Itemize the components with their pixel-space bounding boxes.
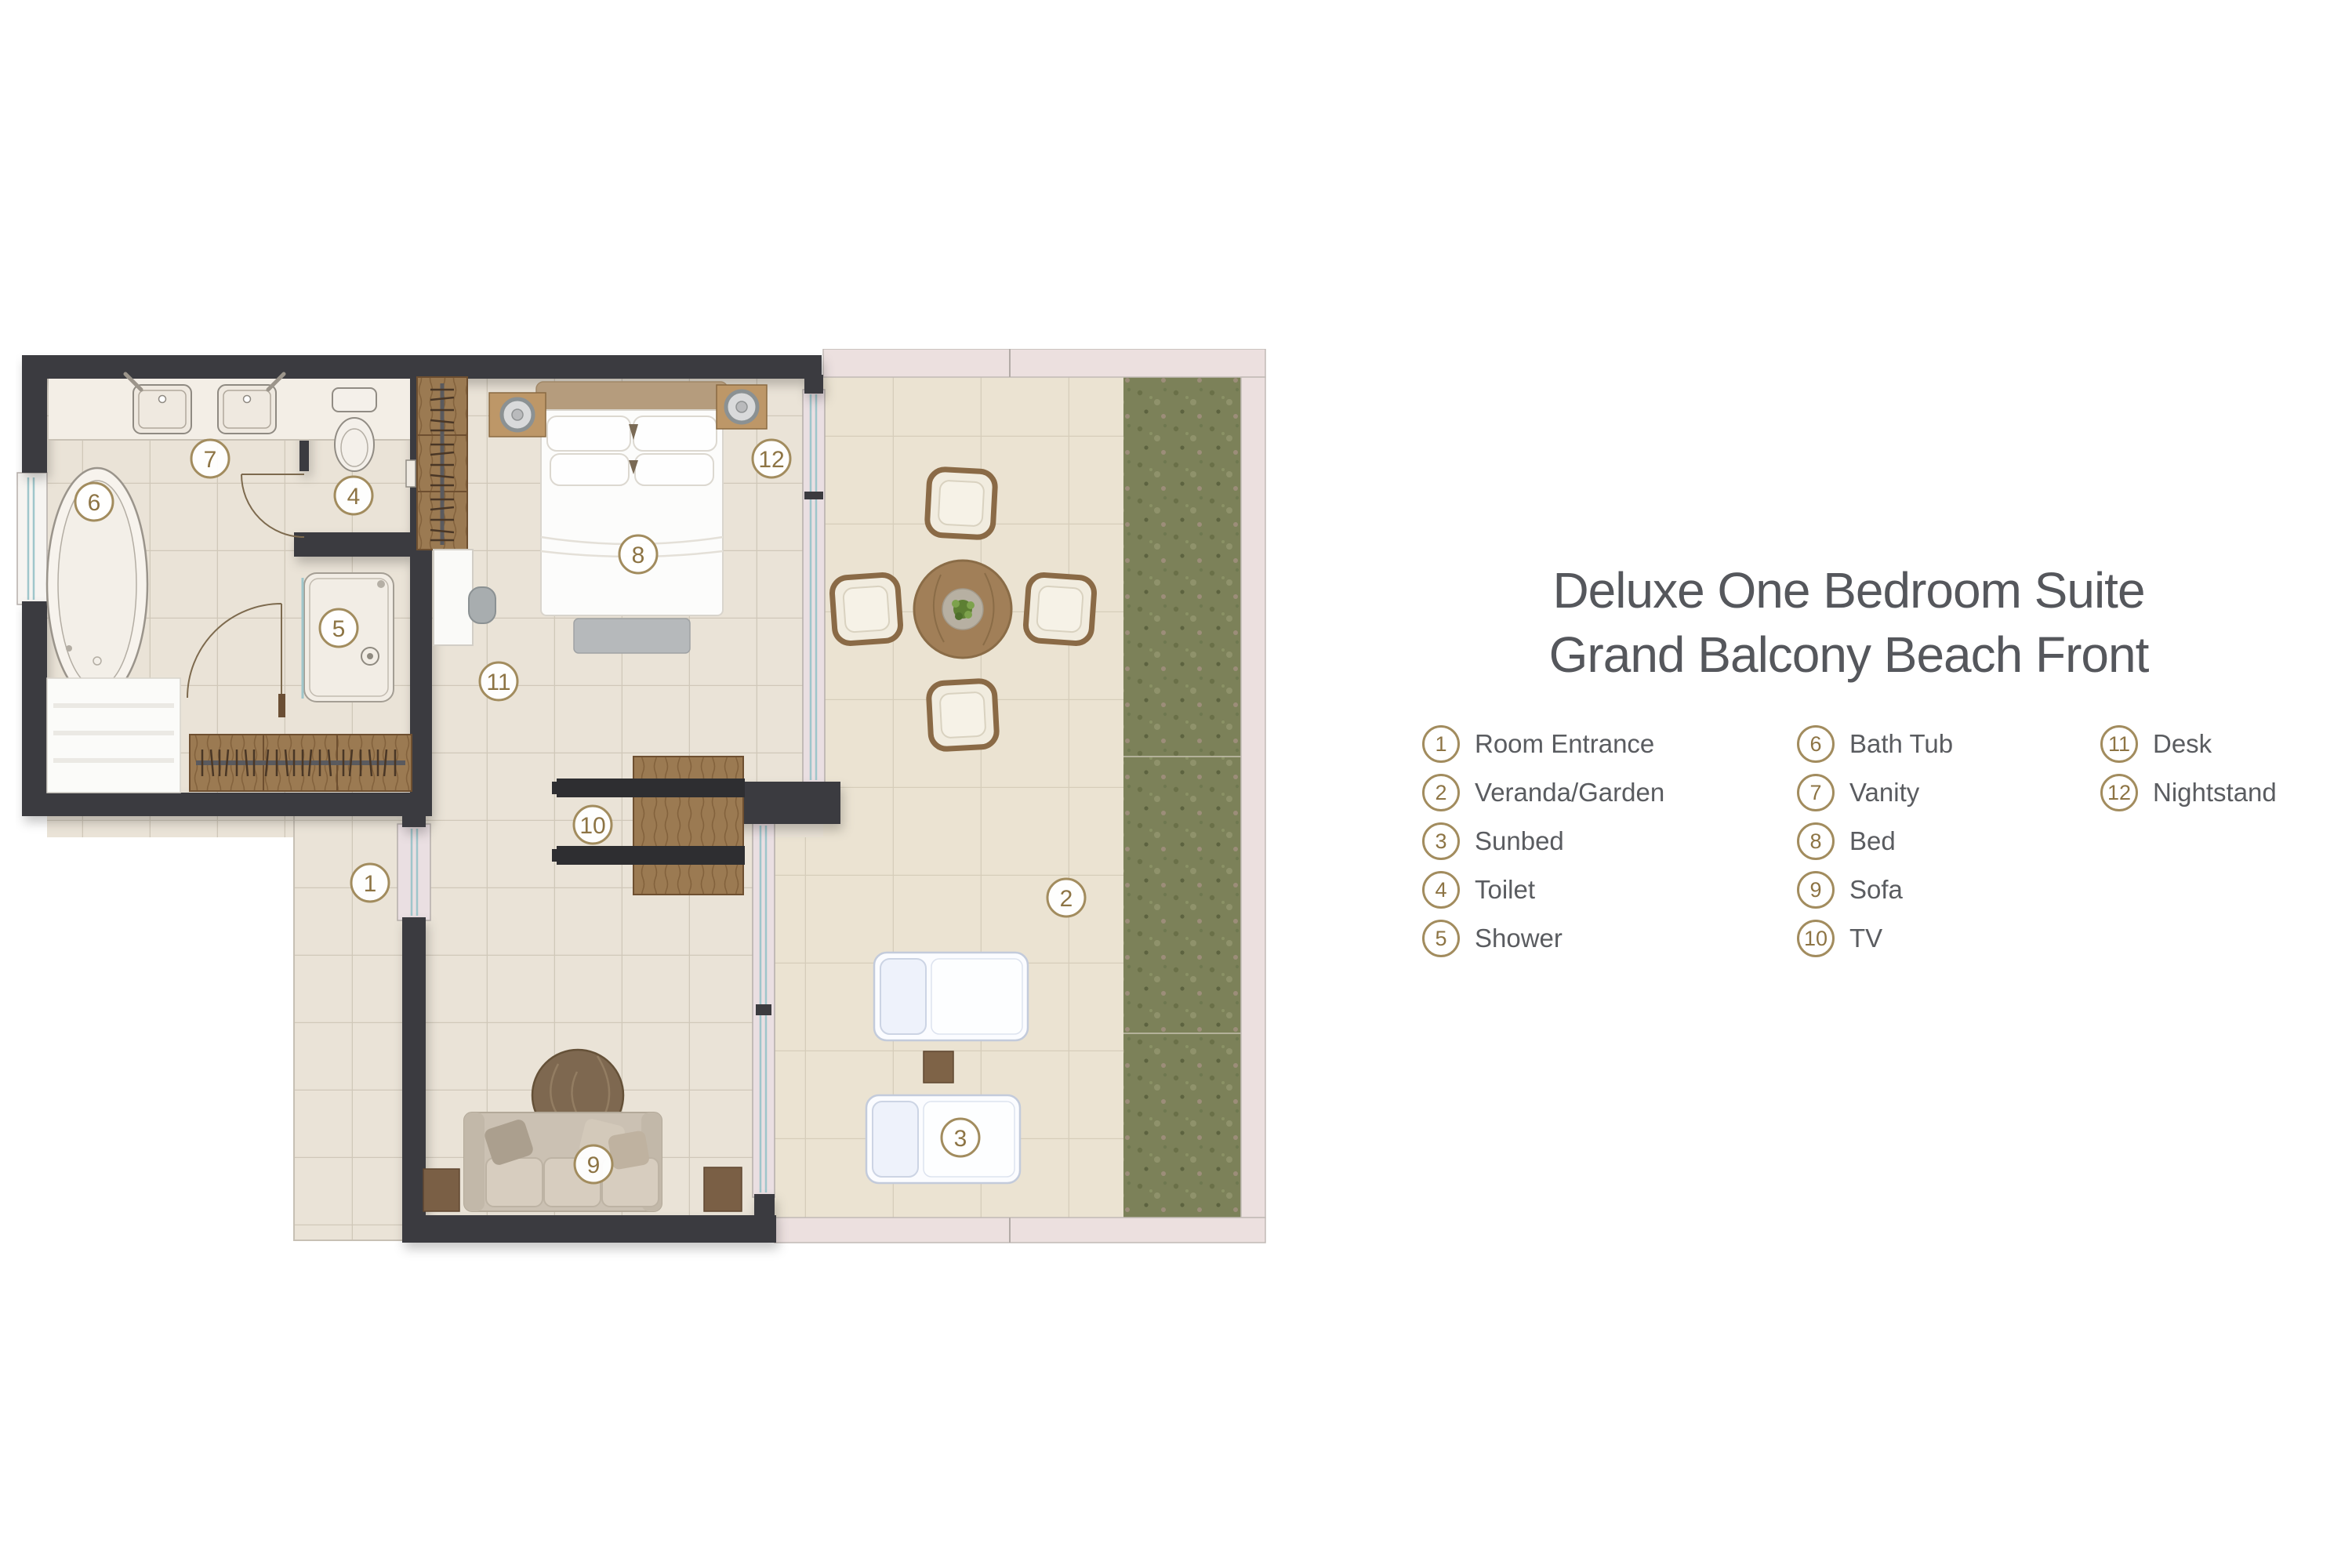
- tv-screen: [557, 779, 745, 797]
- page-title: Deluxe One Bedroom Suite Grand Balcony B…: [1490, 558, 2208, 687]
- legend-item-number: 3: [1422, 822, 1460, 860]
- legend-item-label: Bath Tub: [1849, 729, 1953, 759]
- title-line-2: Grand Balcony Beach Front: [1490, 622, 2208, 687]
- svg-text:8: 8: [632, 543, 645, 568]
- legend-item: 3 Sunbed: [1422, 817, 1664, 866]
- svg-text:10: 10: [579, 813, 605, 839]
- plan-marker-10: 10: [574, 806, 612, 844]
- legend-item-number: 11: [2100, 725, 2138, 763]
- legend-item: 10 TV: [1797, 914, 1953, 963]
- plan-marker-4: 4: [335, 477, 372, 514]
- door-jamb: [278, 694, 285, 717]
- legend-item: 7 Vanity: [1797, 768, 1953, 817]
- bed-bench: [574, 619, 690, 653]
- garden-grass: [1123, 377, 1241, 1218]
- svg-text:3: 3: [954, 1126, 967, 1152]
- legend-item-label: Room Entrance: [1475, 729, 1654, 759]
- legend-item-number: 5: [1422, 920, 1460, 957]
- legend-item-number: 6: [1797, 725, 1835, 763]
- legend-item: 4 Toilet: [1422, 866, 1664, 914]
- plan-marker-6: 6: [75, 483, 113, 521]
- legend-item: 6 Bath Tub: [1797, 720, 1953, 768]
- plan-marker-1: 1: [351, 864, 389, 902]
- svg-text:11: 11: [486, 670, 510, 695]
- legend-item-label: Vanity: [1849, 778, 1919, 808]
- svg-text:4: 4: [347, 484, 361, 510]
- legend-item: 2 Veranda/Garden: [1422, 768, 1664, 817]
- side-table-left: [423, 1169, 459, 1211]
- wicker-chair: [1025, 574, 1095, 644]
- legend-item: 1 Room Entrance: [1422, 720, 1664, 768]
- legend-item-label: Desk: [2153, 729, 2212, 759]
- side-table-right: [704, 1167, 742, 1211]
- legend-item: 5 Shower: [1422, 914, 1664, 963]
- legend-item-number: 10: [1797, 920, 1835, 957]
- svg-text:12: 12: [758, 447, 784, 473]
- sunbed-side-table: [924, 1051, 953, 1083]
- living-sliding-door: [753, 821, 775, 1197]
- legend-item: 9 Sofa: [1797, 866, 1953, 914]
- legend-item: 12 Nightstand: [2100, 768, 2277, 817]
- legend-item-label: Toilet: [1475, 875, 1535, 905]
- legend-column-3: 11 Desk 12 Nightstand: [2100, 720, 2277, 817]
- bathroom-window: [17, 473, 47, 604]
- bedroom-sliding-door: [803, 390, 825, 785]
- bed: [536, 382, 728, 653]
- legend-column-1: 1 Room Entrance 2 Veranda/Garden 3 Sunbe…: [1422, 720, 1664, 963]
- svg-text:2: 2: [1060, 886, 1073, 912]
- plan-marker-5: 5: [320, 609, 358, 647]
- wardrobe-vertical: [417, 377, 467, 550]
- svg-text:9: 9: [587, 1152, 601, 1178]
- wicker-chair: [831, 574, 902, 644]
- sofa: [464, 1112, 662, 1211]
- svg-text:5: 5: [332, 616, 346, 642]
- legend-item-number: 2: [1422, 774, 1460, 811]
- plan-marker-2: 2: [1047, 879, 1085, 916]
- tv-shelf: [557, 846, 745, 865]
- floor-plan: 123456789101112: [16, 349, 1281, 1266]
- floor-plan-container: 123456789101112: [16, 349, 1281, 1266]
- sunbed: [874, 953, 1028, 1040]
- plan-marker-12: 12: [753, 440, 790, 477]
- legend-item-number: 9: [1797, 871, 1835, 909]
- plan-marker-8: 8: [619, 535, 657, 573]
- nightstand-right: [717, 385, 767, 429]
- headboard: [536, 382, 728, 413]
- outdoor-table: [914, 561, 1011, 658]
- entrance-door: [397, 824, 430, 920]
- wicker-chair: [928, 681, 997, 750]
- legend-item-label: Nightstand: [2153, 778, 2277, 808]
- legend-item-number: 4: [1422, 871, 1460, 909]
- title-line-1: Deluxe One Bedroom Suite: [1490, 558, 2208, 622]
- svg-text:1: 1: [364, 871, 377, 897]
- nightstand-left: [489, 393, 546, 437]
- legend-item: 11 Desk: [2100, 720, 2277, 768]
- desk-chair: [469, 587, 495, 623]
- plan-marker-7: 7: [191, 440, 229, 477]
- legend-item-number: 7: [1797, 774, 1835, 811]
- plan-marker-11: 11: [480, 662, 517, 700]
- legend-item-label: Sofa: [1849, 875, 1903, 905]
- legend-column-2: 6 Bath Tub 7 Vanity 8 Bed 9 Sofa 10 TV: [1797, 720, 1953, 963]
- legend-item-label: Sunbed: [1475, 826, 1564, 856]
- legend-item-number: 12: [2100, 774, 2138, 811]
- legend-item-number: 8: [1797, 822, 1835, 860]
- svg-text:6: 6: [88, 490, 101, 516]
- page: 123456789101112 Deluxe One Bedroom Suite…: [0, 0, 2352, 1568]
- legend-item-label: Bed: [1849, 826, 1896, 856]
- legend-item-label: Veranda/Garden: [1475, 778, 1664, 808]
- legend-item: 8 Bed: [1797, 817, 1953, 866]
- svg-text:7: 7: [204, 447, 217, 473]
- legend-item-label: TV: [1849, 924, 1882, 953]
- wicker-chair: [927, 469, 996, 538]
- legend-item-number: 1: [1422, 725, 1460, 763]
- wardrobe-horizontal: [190, 735, 412, 791]
- plan-marker-9: 9: [575, 1145, 612, 1183]
- legend-item-label: Shower: [1475, 924, 1563, 953]
- shower-head-icon: [377, 580, 385, 588]
- plan-marker-3: 3: [942, 1119, 979, 1156]
